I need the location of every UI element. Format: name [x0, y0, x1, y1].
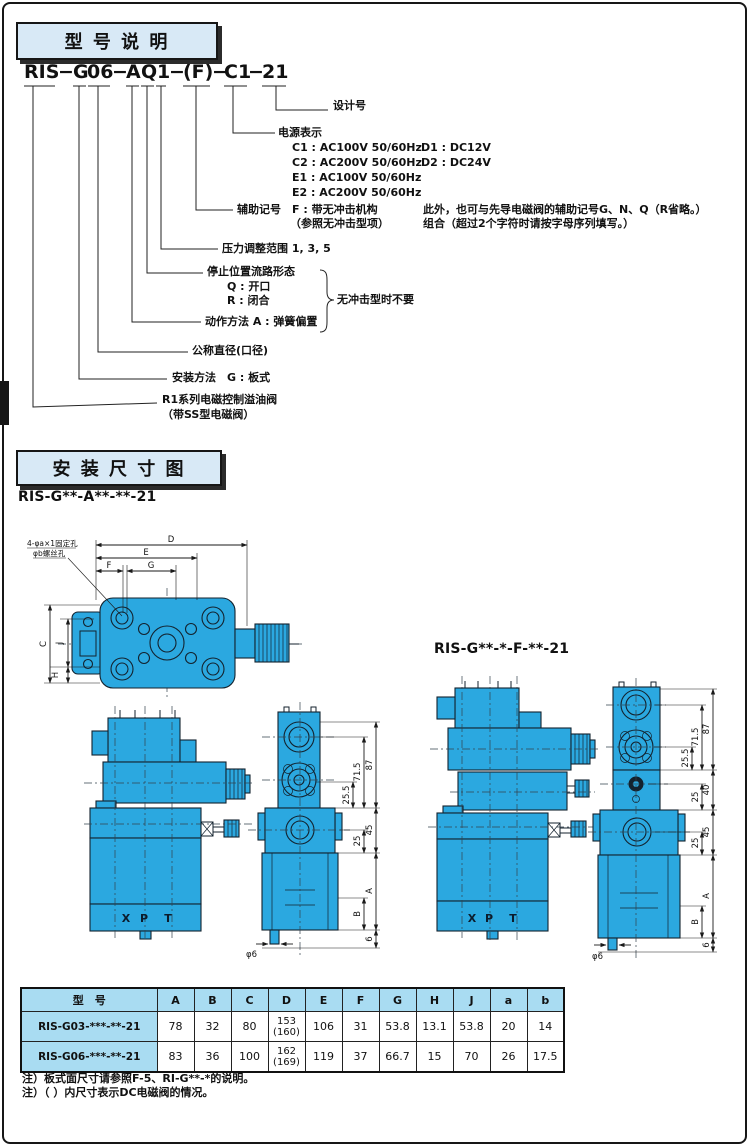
cell: 106: [305, 1012, 342, 1042]
cell: 119: [305, 1042, 342, 1073]
cell: 32: [194, 1012, 231, 1042]
dim-25: 25: [691, 838, 701, 849]
dim-71-5: 71.5: [691, 728, 701, 747]
footnote-2: 注）（ ）内尺寸表示DC电磁阀的情况。: [22, 1084, 214, 1100]
section1-title: 型 号 说 明: [16, 22, 218, 60]
dim-F: F: [107, 561, 112, 571]
dim-G: G: [148, 561, 155, 571]
drawing-front-view-a: 87 71.5 25.5 45 25 A B 6 φ6: [246, 702, 380, 960]
cell: 17.5: [527, 1042, 564, 1073]
callout-stop-title: 停止位置流路形态: [207, 265, 295, 279]
cell: 53.8: [379, 1012, 416, 1042]
code-seg-21: 21: [262, 61, 288, 83]
col-c: C: [231, 988, 268, 1012]
catalog-page: 型 号 说 明 RIS − G 06 − A Q 1 − (F) − C1 − …: [0, 0, 750, 1147]
dim-40: 40: [702, 785, 712, 796]
dim-A: A: [365, 888, 375, 894]
dim-25: 25: [353, 836, 363, 847]
dim-phi6: φ6: [592, 952, 603, 962]
dim-J: J: [55, 642, 65, 646]
drawing-front-view-f: 87 71.5 25.5 40 25 45 25 A B 6 φ6: [588, 678, 717, 962]
cell: 80: [231, 1012, 268, 1042]
col-b2: b: [527, 988, 564, 1012]
col-a2: a: [490, 988, 527, 1012]
table-row: RIS-G03-***-**-21 78 32 80 153(160) 106 …: [21, 1012, 564, 1042]
aux-note-line2: 组合（超过2个字符时请按字母序列填写。）: [423, 217, 634, 231]
section2-title: 安 装 尺 寸 图: [16, 450, 222, 486]
dimension-drawings: 4-φa×1固定孔 φb螺丝孔 D E F G C J H: [0, 515, 750, 985]
power-option-d1: D1 : DC12V: [421, 141, 491, 154]
dim-A: A: [702, 893, 712, 899]
cell: 66.7: [379, 1042, 416, 1073]
port-x-label: X: [122, 912, 131, 925]
port-t-label: T: [509, 912, 517, 925]
port-t-label: T: [164, 912, 172, 925]
cell: 13.1: [416, 1012, 453, 1042]
power-option-c2: C2 : AC200V 50/60Hz: [292, 156, 421, 170]
dim-25-5: 25.5: [342, 786, 352, 805]
col-g: G: [379, 988, 416, 1012]
cell-d: 162(169): [268, 1042, 305, 1073]
drawing-side-view-f: X P T: [428, 676, 600, 941]
cell: 83: [157, 1042, 194, 1073]
code-dash: −: [58, 61, 74, 83]
callout-series-line1: R1系列电磁控制溢油阀: [162, 393, 277, 407]
col-b: B: [194, 988, 231, 1012]
code-seg-q: Q: [141, 61, 157, 83]
power-option-row: E2 : AC200V 50/60Hz: [292, 186, 421, 200]
page-edge-tab: [0, 381, 9, 425]
d-value-dc: (169): [269, 1057, 305, 1068]
dim-C: C: [39, 641, 49, 647]
col-f: F: [342, 988, 379, 1012]
hole-note-line2: φb螺丝孔: [33, 548, 66, 558]
dim-B: B: [691, 919, 701, 925]
callout-series-line2: （带SS型电磁阀）: [162, 408, 254, 422]
callout-design: 设计号: [333, 99, 366, 113]
callout-diameter: 公称直径(口径): [192, 344, 268, 358]
callout-aux-line2: （参照无冲击型项）: [290, 217, 389, 231]
power-option-row: C2 : AC200V 50/60HzD2 : DC24V: [292, 156, 491, 170]
power-option-row: E1 : AC100V 50/60Hz: [292, 171, 421, 185]
code-seg-06: 06: [87, 61, 113, 83]
callout-action: 动作方法 A : 弹簧偏置: [205, 315, 317, 329]
col-j: J: [453, 988, 490, 1012]
aux-note-line1: 此外，也可与先导电磁阀的辅助记号G、N、Q（R省略。）: [423, 203, 707, 217]
dimensions-table: 型 号 A B C D E F G H J a b RIS-G03-***-**…: [20, 987, 565, 1073]
col-a: A: [157, 988, 194, 1012]
col-model: 型 号: [21, 988, 157, 1012]
brace: [320, 270, 334, 332]
callout-stop-q: Q : 开口: [227, 280, 270, 294]
cell: 37: [342, 1042, 379, 1073]
d-value-dc: (160): [269, 1027, 305, 1038]
callout-mounting: 安装方法 G : 板式: [172, 371, 270, 385]
hole-note-line1: 4-φa×1固定孔: [27, 538, 78, 548]
dim-87: 87: [365, 760, 375, 771]
dim-71-5: 71.5: [353, 763, 363, 782]
power-option-d2: D2 : DC24V: [421, 156, 491, 169]
cell: 26: [490, 1042, 527, 1073]
section2-title-text: 安 装 尺 寸 图: [52, 455, 185, 481]
code-seg-f: (F): [183, 61, 213, 83]
port-x-label: X: [468, 912, 477, 925]
col-e: E: [305, 988, 342, 1012]
d-value: 153: [269, 1016, 305, 1027]
callout-pressure: 压力调整范围 1, 3, 5: [222, 242, 331, 256]
cell: 36: [194, 1042, 231, 1073]
code-seg-ris: RIS: [24, 61, 59, 83]
dim-25-5: 25.5: [681, 749, 691, 768]
cell: 31: [342, 1012, 379, 1042]
drawing-side-view-a: X P T: [84, 706, 255, 941]
cell: 15: [416, 1042, 453, 1073]
dim-25: 25: [691, 792, 701, 803]
cell: 78: [157, 1012, 194, 1042]
cell: 53.8: [453, 1012, 490, 1042]
dim-6: 6: [365, 936, 375, 941]
power-option-row: C1 : AC100V 50/60HzD1 : DC12V: [292, 141, 491, 155]
cell: 20: [490, 1012, 527, 1042]
table-header-row: 型 号 A B C D E F G H J a b: [21, 988, 564, 1012]
dim-45: 45: [702, 827, 712, 838]
callout-stop-r: R : 闭合: [227, 294, 270, 308]
col-d: D: [268, 988, 305, 1012]
port-p-label: P: [485, 912, 493, 925]
power-option-e2: E2 : AC200V 50/60Hz: [292, 186, 421, 200]
dim-87: 87: [702, 724, 712, 735]
dim-phi6: φ6: [246, 950, 257, 960]
port-p-label: P: [140, 912, 148, 925]
cell-d: 153(160): [268, 1012, 305, 1042]
dim-6: 6: [702, 942, 712, 947]
callout-power-title: 电源表示: [278, 126, 322, 140]
model-cell: RIS-G03-***-**-21: [21, 1012, 157, 1042]
cell: 14: [527, 1012, 564, 1042]
code-seg-a: A: [126, 61, 141, 83]
dim-45: 45: [365, 825, 375, 836]
dim-E: E: [143, 548, 148, 558]
brace-note: 无冲击型时不要: [337, 293, 414, 307]
callout-aux-line1: 辅助记号 F : 带无冲击机构: [237, 203, 378, 217]
dim-D: D: [168, 535, 175, 545]
section1-title-text: 型 号 说 明: [65, 28, 170, 54]
drawing-top-view: 4-φa×1固定孔 φb螺丝孔 D E F G C J H: [27, 535, 302, 700]
dim-B: B: [353, 911, 363, 917]
col-h: H: [416, 988, 453, 1012]
dim-H: H: [51, 672, 61, 678]
variant-a-label: RIS-G**-A**-**-21: [18, 489, 156, 505]
power-option-e1: E1 : AC100V 50/60Hz: [292, 171, 421, 185]
d-value: 162: [269, 1046, 305, 1057]
power-option-c1: C1 : AC100V 50/60Hz: [292, 141, 421, 155]
model-cell: RIS-G06-***-**-21: [21, 1042, 157, 1073]
cell: 70: [453, 1042, 490, 1073]
variant-f-label: RIS-G**-*-F-**-21: [434, 641, 569, 657]
cell: 100: [231, 1042, 268, 1073]
table-row: RIS-G06-***-**-21 83 36 100 162(169) 119…: [21, 1042, 564, 1073]
